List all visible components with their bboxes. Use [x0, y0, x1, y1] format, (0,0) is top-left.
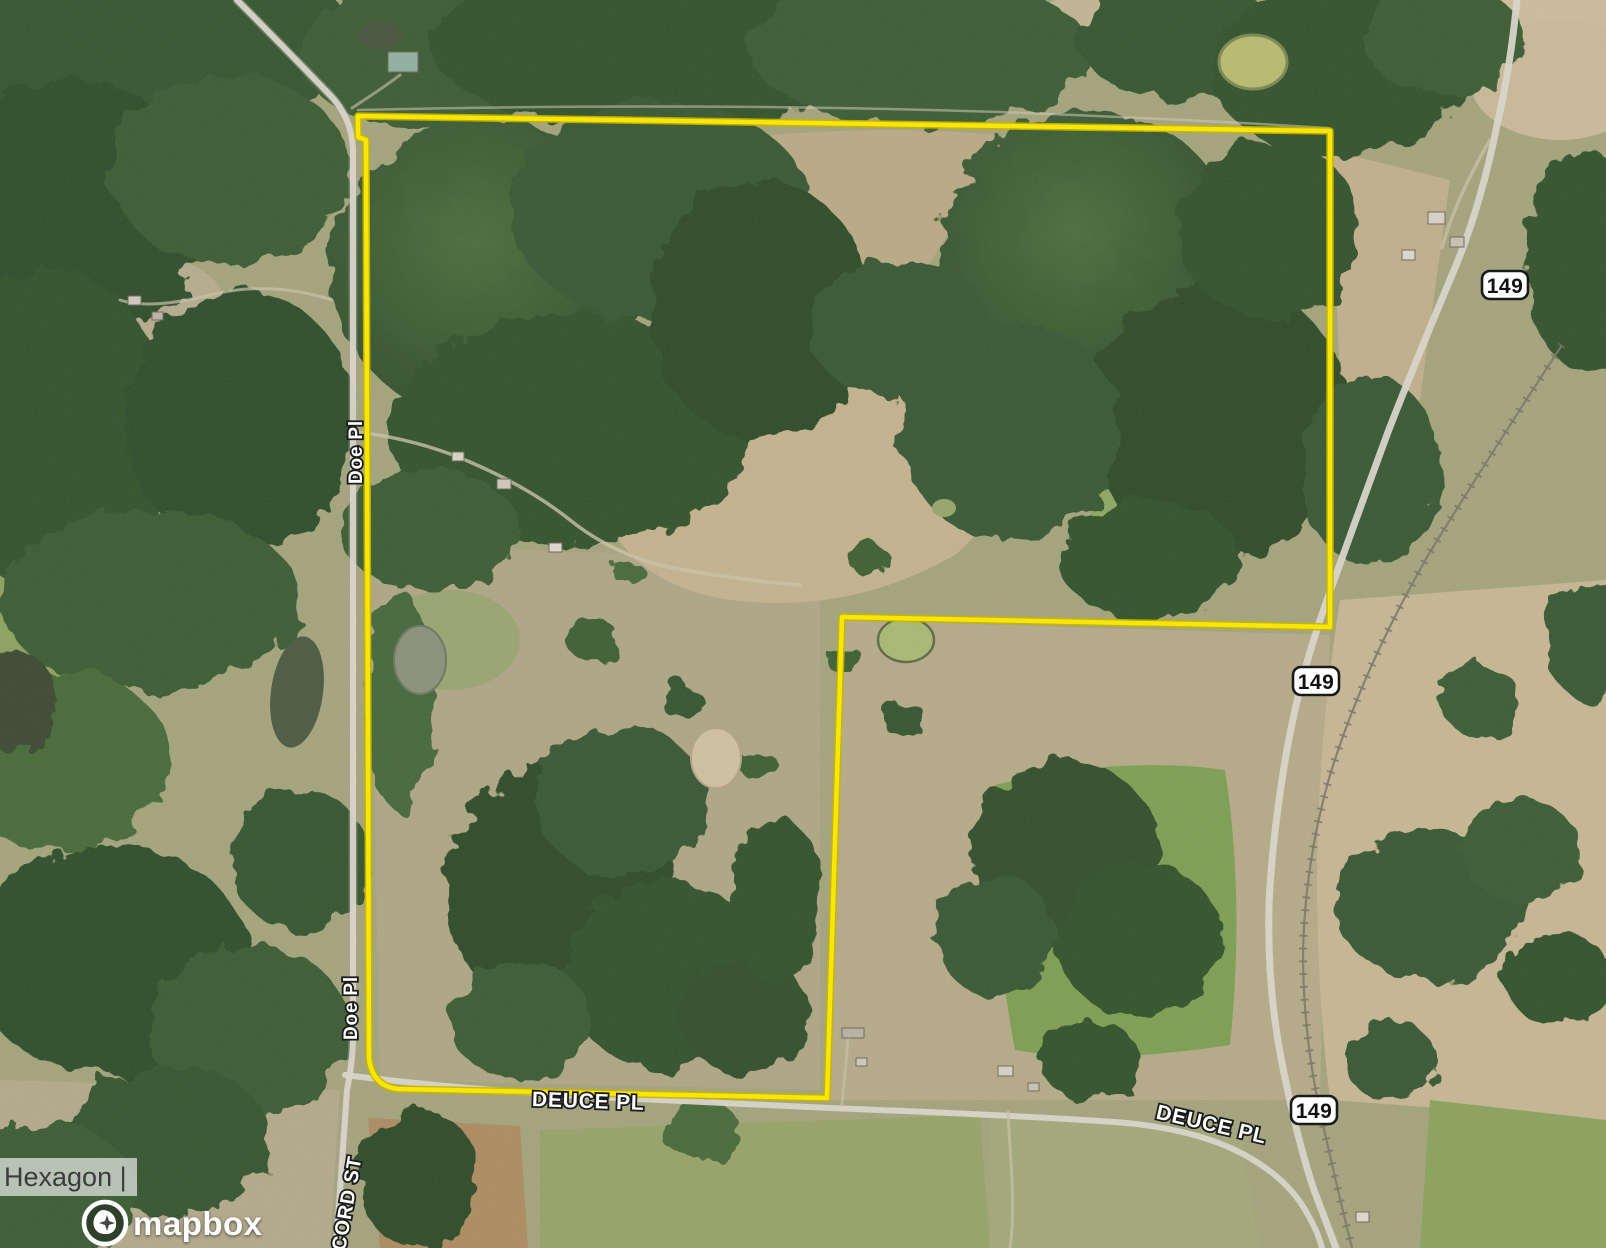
- mapbox-wordmark: mapbox: [133, 1205, 263, 1242]
- svg-text:149: 149: [1298, 671, 1335, 694]
- mapbox-logo[interactable]: mapbox: [78, 1196, 298, 1248]
- satellite-imagery: Doe Pl Doe Pl DEUCE PL DEUCE PL NCORD ST…: [0, 0, 1606, 1248]
- imagery-grain: [0, 0, 1606, 1248]
- svg-text:149: 149: [1487, 275, 1524, 298]
- mapbox-pin-icon: [84, 1202, 126, 1244]
- road-label-doe-pl-south: Doe Pl: [341, 976, 362, 1040]
- highway-shield-149-mid: 149: [1293, 667, 1339, 695]
- road-label-doe-pl-north: Doe Pl: [346, 420, 367, 484]
- highway-shield-149-south: 149: [1291, 1096, 1337, 1124]
- satellite-map[interactable]: Doe Pl Doe Pl DEUCE PL DEUCE PL NCORD ST…: [0, 0, 1606, 1248]
- highway-shield-149-north: 149: [1482, 271, 1528, 299]
- road-label-deuce-pl-west: DEUCE PL: [532, 1088, 645, 1115]
- map-attribution[interactable]: Hexagon |: [0, 1158, 137, 1196]
- svg-text:149: 149: [1296, 1100, 1333, 1123]
